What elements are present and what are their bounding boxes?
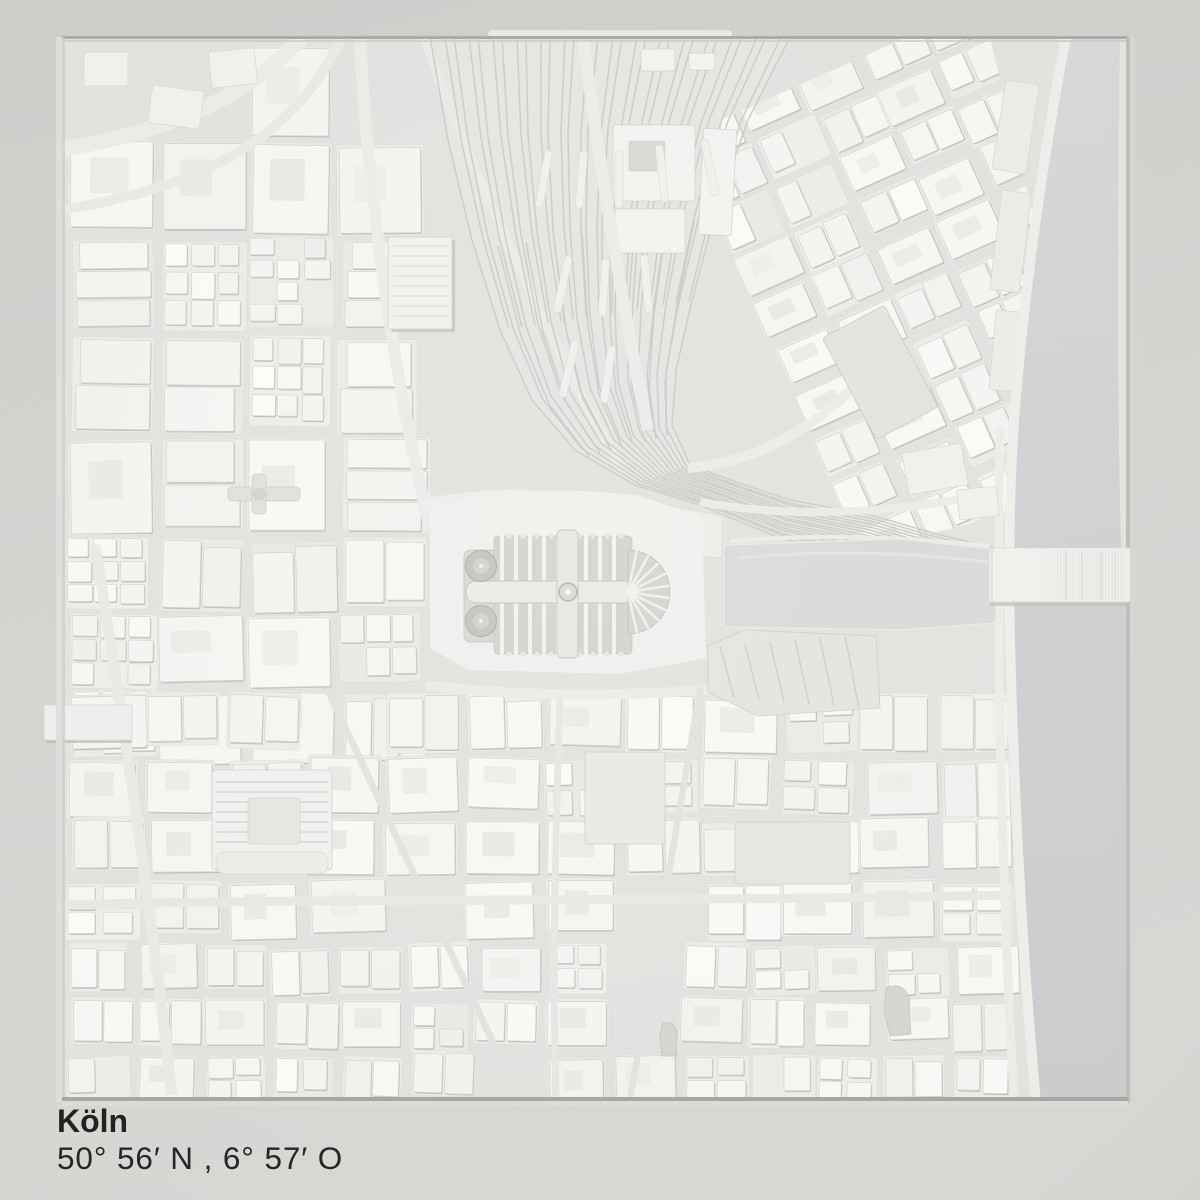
svg-text:Köln: Köln [57, 1103, 128, 1139]
svg-text:50° 56′ N , 6° 57′ O: 50° 56′ N , 6° 57′ O [57, 1140, 343, 1176]
